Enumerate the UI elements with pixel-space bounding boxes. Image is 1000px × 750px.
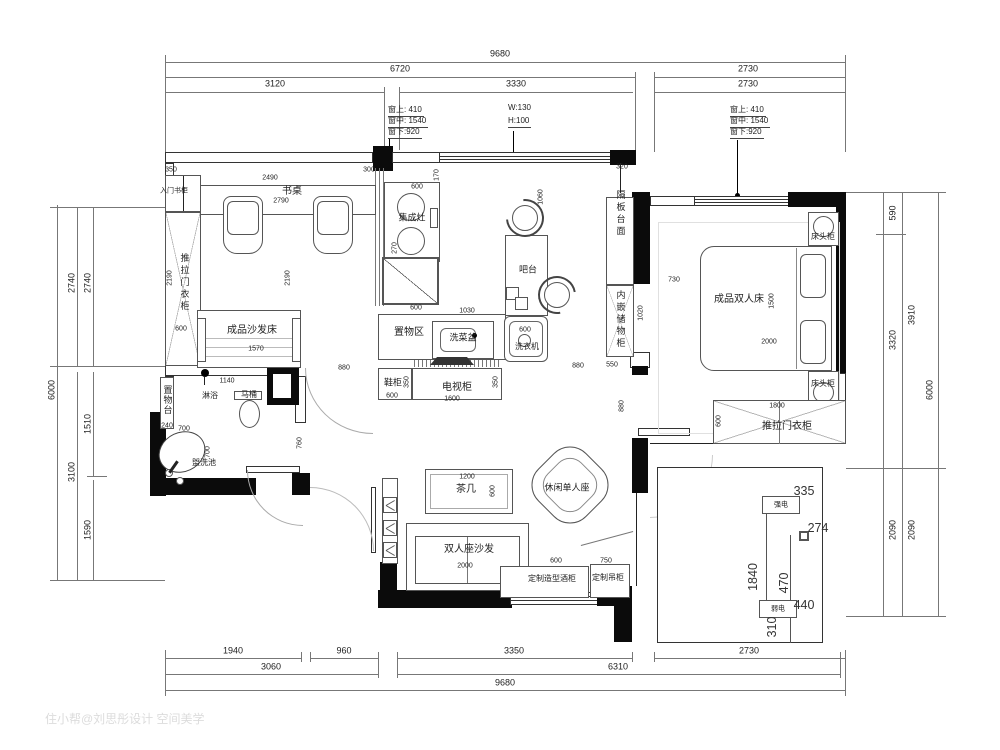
wall: [788, 192, 846, 207]
wall: [632, 192, 650, 284]
dim-label: 274: [808, 522, 829, 535]
wall: [632, 438, 648, 493]
desk-chair: [223, 196, 263, 254]
dim-label: 470: [778, 573, 791, 594]
wall: [158, 478, 256, 495]
beam-note: H:100: [508, 117, 531, 128]
sofa-bed-line: [206, 356, 292, 357]
room-label-bar: 吧台: [519, 266, 537, 275]
dim-label: 9680: [495, 679, 515, 688]
shower-stem: [204, 377, 205, 385]
dim-ext: [654, 652, 655, 662]
floor-plan: 9680 6720 2730 3120 3330 2730 6000 2740 …: [0, 0, 1000, 750]
dim-ext: [846, 616, 946, 617]
dim-label: 880: [338, 365, 350, 372]
sofa-bed-line: [206, 338, 292, 339]
dim-label: 1570: [248, 346, 264, 353]
room-label-entry-bookcase: 入门书柜: [160, 188, 188, 195]
hinge-symbol: [383, 497, 397, 513]
room-label-shelf-counter: 隔板台面: [616, 190, 625, 238]
flip-door-line: [581, 531, 633, 546]
dim-label: 310: [766, 617, 779, 638]
dim-ext: [845, 55, 846, 152]
wall: [380, 562, 397, 592]
dim-label: 3330: [506, 80, 526, 89]
dim-line: [654, 92, 845, 93]
room-label-strong-elec: 强电: [774, 502, 788, 509]
niche-inner: [273, 374, 291, 398]
door-arc: [305, 368, 373, 434]
dim-label: 2000: [457, 563, 473, 570]
dim-line: [938, 192, 939, 616]
dim-label: 2000: [761, 339, 777, 346]
dim-label: 2490: [262, 175, 278, 182]
dim-ext: [165, 55, 166, 152]
dim-label: 1840: [747, 563, 760, 591]
room-label-tea-table: 茶几: [456, 485, 476, 495]
dim-label: 1140: [219, 378, 234, 385]
bar-step: [515, 297, 528, 310]
dim-label: 170: [434, 169, 441, 181]
dim-label: 6000: [926, 380, 935, 400]
dim-label: 2730: [738, 65, 758, 74]
dim-line: [165, 658, 301, 659]
room-label-double-bed: 成品双人床: [714, 295, 764, 305]
room-label-tv-cabinet: 电视柜: [442, 383, 472, 393]
room-label-bedroom-wardrobe: 推拉门衣柜: [762, 422, 812, 432]
dim-ext: [310, 652, 311, 662]
dim-label: 350: [493, 376, 500, 388]
dim-label: 590: [889, 205, 898, 220]
room-label-nightstand: 床头柜: [811, 233, 835, 241]
dim-ext: [397, 652, 398, 678]
dim-label: 760: [297, 437, 304, 449]
dim-label: 1020: [638, 305, 645, 321]
dim-ext: [845, 650, 846, 696]
dim-label: 600: [716, 415, 723, 427]
room-label-single-seat: 休闲单人座: [544, 484, 589, 493]
dim-label: 240: [161, 423, 173, 430]
stove-knob: [430, 208, 438, 228]
dim-label: 700: [178, 426, 190, 433]
dim-ext: [654, 72, 655, 152]
dim-label: 3100: [68, 462, 77, 482]
bar-stool: [512, 205, 538, 231]
stove-burner: [397, 227, 425, 255]
wall: [378, 590, 512, 608]
room-label-shower: 淋浴: [202, 392, 218, 400]
dim-line: [165, 690, 845, 691]
dim-label: 600: [411, 184, 423, 191]
dim-label: 1600: [444, 396, 460, 403]
window-note: 窗下:920: [388, 128, 422, 139]
dim-ext: [840, 652, 841, 678]
dim-line: [310, 658, 378, 659]
dim-label: 6720: [390, 65, 410, 74]
hinge-symbol: [383, 520, 397, 536]
dim-label: 335: [794, 485, 815, 498]
dim-label: 1510: [84, 414, 93, 434]
dim-ext: [87, 476, 107, 477]
room-label-washer: 洗衣机: [515, 343, 539, 351]
room-label-sink: 洗菜盆: [449, 334, 476, 343]
dim-label: 2190: [285, 270, 292, 286]
dim-label: 3320: [889, 330, 898, 350]
dim-label: 9680: [490, 50, 510, 59]
beam-note: W:130: [508, 104, 533, 114]
dim-line: [165, 674, 378, 675]
dim-ext: [378, 652, 379, 678]
dim-label: 880: [619, 400, 626, 412]
room-label-toilet: 马桶: [241, 391, 257, 399]
closet-line: [766, 512, 767, 602]
dim-ext: [846, 468, 946, 469]
toilet-bowl: [239, 400, 260, 428]
dim-line: [165, 77, 635, 78]
dim-ext: [301, 652, 302, 662]
dim-ext: [50, 366, 165, 367]
dim-label: 750: [600, 558, 612, 565]
sofa-bed-arm: [197, 318, 206, 362]
dim-line: [165, 92, 384, 93]
dim-line: [397, 658, 632, 659]
pillow: [800, 320, 826, 364]
room-label-shoe-cabinet: 鞋柜: [384, 379, 402, 388]
leader-line: [737, 140, 738, 196]
dim-line: [654, 658, 845, 659]
dim-label: 550: [606, 362, 618, 369]
dim-label: 3910: [908, 305, 917, 325]
dim-line: [397, 674, 840, 675]
dim-line: [902, 192, 903, 616]
shower-head: [201, 369, 209, 377]
dim-line: [57, 205, 58, 580]
dim-label: 1200: [459, 474, 475, 481]
fridge-cabinet: [382, 257, 439, 305]
bar-stool: [544, 282, 570, 308]
dim-label: 1940: [223, 647, 243, 656]
room-label-shelf-stand: 置物台: [163, 385, 172, 415]
dim-label: 600: [519, 327, 531, 334]
dim-line: [883, 192, 884, 616]
dim-line: [399, 92, 633, 93]
room-label-stove: 集成灶: [398, 214, 425, 223]
dim-label: 2740: [68, 273, 77, 293]
pillow: [800, 254, 826, 298]
window: [694, 196, 790, 206]
dim-label: 600: [175, 326, 187, 333]
room-label-sofa-bed: 成品沙发床: [227, 326, 277, 336]
dim-label: 350: [404, 376, 411, 388]
door-arc: [310, 487, 374, 551]
dim-label: 6000: [48, 380, 57, 400]
sofa-bed-arm: [292, 318, 301, 362]
dim-label: 2090: [908, 520, 917, 540]
room-label-desk: 书桌: [282, 187, 302, 197]
dim-label: 880: [572, 363, 584, 370]
dim-label: 600: [386, 393, 398, 400]
room-label-storage-zone: 置物区: [394, 328, 424, 338]
dim-label: 3120: [265, 80, 285, 89]
room-label-builtin-storage: 内嵌储物柜: [616, 290, 625, 350]
dim-label: 3350: [504, 647, 524, 656]
dim-label: 440: [794, 599, 815, 612]
dim-label: 700: [205, 446, 212, 458]
dim-label: 960: [336, 647, 351, 656]
dim-ext: [165, 650, 166, 696]
sofa-bed: [197, 310, 301, 368]
dim-ext: [50, 207, 165, 208]
tv-icon: [430, 357, 474, 365]
window: [439, 152, 613, 163]
dim-label: 600: [550, 558, 562, 565]
dim-ext: [846, 192, 946, 193]
room-label-wash-basin: 盥洗池: [192, 459, 216, 467]
room-label-weak-elec: 弱电: [771, 606, 785, 613]
dim-label: 2730: [739, 647, 759, 656]
dim-label: 300: [363, 167, 375, 174]
wall: [632, 366, 648, 375]
wall-line: [636, 493, 637, 586]
headboard-line: [796, 248, 797, 369]
dim-label: 2730: [738, 80, 758, 89]
desk-chair: [313, 196, 353, 254]
dim-line: [93, 372, 94, 476]
wall-line: [650, 443, 713, 444]
room-label-wine-cabinet: 定制造型酒柜: [528, 575, 576, 583]
dim-label: 2740: [84, 273, 93, 293]
dim-label: 2090: [889, 520, 898, 540]
dim-line: [93, 207, 94, 366]
dim-line: [77, 207, 78, 366]
room-label-study-wardrobe: 推拉门衣柜: [180, 253, 189, 313]
dim-label: 1500: [769, 293, 776, 309]
dim-ext: [876, 234, 906, 235]
dim-label: 2790: [273, 198, 289, 205]
wall-thin: [165, 152, 373, 163]
room-label-hanging-cabinet: 定制吊柜: [592, 574, 624, 582]
watermark: 住小帮@刘思彤设计 空间美学: [45, 710, 205, 727]
dim-label: 1030: [459, 308, 475, 315]
dim-label: 320: [616, 164, 628, 171]
dim-label: 1800: [769, 403, 785, 410]
dim-label: 270: [392, 242, 399, 254]
dim-label: 1060: [538, 189, 545, 205]
dim-label: 1590: [84, 520, 93, 540]
dim-label: 6310: [608, 663, 628, 672]
dim-label: 600: [490, 485, 497, 497]
basin-faucet: [176, 477, 184, 485]
hinge-symbol: [383, 542, 397, 558]
dim-line: [77, 372, 78, 580]
room-label-nightstand: 床头柜: [811, 380, 835, 388]
dim-ext: [632, 652, 633, 662]
wall-thin: [650, 196, 696, 206]
dim-label: 350: [165, 167, 177, 174]
dim-label: 600: [410, 305, 422, 312]
window-note: 窗下:920: [730, 128, 764, 139]
wall-thin: [392, 152, 440, 163]
dim-label: 2190: [167, 270, 174, 286]
dim-label: 3060: [261, 663, 281, 672]
door-arc: [247, 470, 303, 526]
room-label-sofa: 双人座沙发: [444, 545, 494, 555]
dim-ext: [635, 72, 636, 152]
dim-line: [93, 480, 94, 580]
dim-label: 730: [668, 277, 680, 284]
dim-ext: [384, 87, 385, 150]
dim-ext: [50, 580, 165, 581]
